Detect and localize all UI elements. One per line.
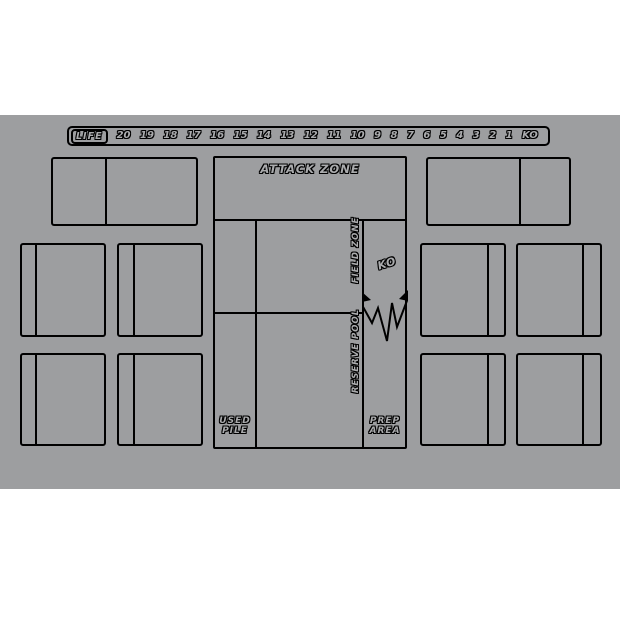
playmat: LIFE 2019181716151413121110987654321KO <box>0 115 620 489</box>
reserve-pool-label: RESERVE POOL <box>351 301 361 401</box>
slot-divider <box>487 245 489 335</box>
life-value: 4 <box>456 130 463 142</box>
slot-divider <box>582 245 584 335</box>
slot-divider <box>582 355 584 444</box>
card-slot-right-4 <box>516 353 602 446</box>
slot-divider <box>519 159 521 224</box>
attack-zone-divider <box>215 219 405 221</box>
life-value: 3 <box>473 130 480 142</box>
life-value: 8 <box>391 130 398 142</box>
attack-zone-label: ATTACK ZONE <box>215 162 405 176</box>
card-slot-right-3 <box>420 353 506 446</box>
life-value: 6 <box>423 130 430 142</box>
life-value: 5 <box>440 130 447 142</box>
life-value: 19 <box>140 130 154 142</box>
life-value: 7 <box>407 130 414 142</box>
life-value: 14 <box>257 130 271 142</box>
slot-divider <box>133 355 135 444</box>
life-value: 10 <box>351 130 365 142</box>
life-track-label: LIFE <box>71 129 108 144</box>
card-slot-top-right <box>426 157 571 226</box>
field-reserve-divider <box>215 312 364 314</box>
life-track: LIFE 2019181716151413121110987654321KO <box>67 126 550 146</box>
life-track-values: 2019181716151413121110987654321KO <box>108 130 548 142</box>
slot-divider <box>35 355 37 444</box>
life-value: 20 <box>117 130 131 142</box>
life-value: 18 <box>163 130 177 142</box>
life-value: 16 <box>210 130 224 142</box>
center-panel: ATTACK ZONE FIELD ZONE RESERVE POOL KO U… <box>213 156 407 449</box>
card-slot-top-left <box>51 157 198 226</box>
field-zone-label: FIELD ZONE <box>351 205 361 295</box>
ko-zone-label: KO <box>373 253 402 273</box>
life-value: 15 <box>234 130 248 142</box>
slot-divider <box>105 159 107 224</box>
card-slot-left-3 <box>20 353 106 446</box>
card-slot-left-2 <box>117 243 203 337</box>
card-slot-right-1 <box>420 243 506 337</box>
prep-area-label: PREP AREA <box>363 416 407 437</box>
life-value: 12 <box>304 130 318 142</box>
slot-divider <box>487 355 489 444</box>
life-value: 2 <box>489 130 496 142</box>
ko-burst-icon <box>362 288 408 350</box>
slot-divider <box>133 245 135 335</box>
slot-divider <box>35 245 37 335</box>
life-value: KO <box>522 130 538 142</box>
card-slot-left-4 <box>117 353 203 446</box>
card-slot-left-1 <box>20 243 106 337</box>
life-value: 1 <box>506 130 513 142</box>
life-value: 11 <box>327 130 341 142</box>
used-pile-label: USED PILE <box>215 416 255 437</box>
card-slot-right-2 <box>516 243 602 337</box>
life-value: 9 <box>374 130 381 142</box>
life-value: 13 <box>280 130 294 142</box>
life-value: 17 <box>187 130 201 142</box>
used-pile-divider <box>255 219 257 447</box>
